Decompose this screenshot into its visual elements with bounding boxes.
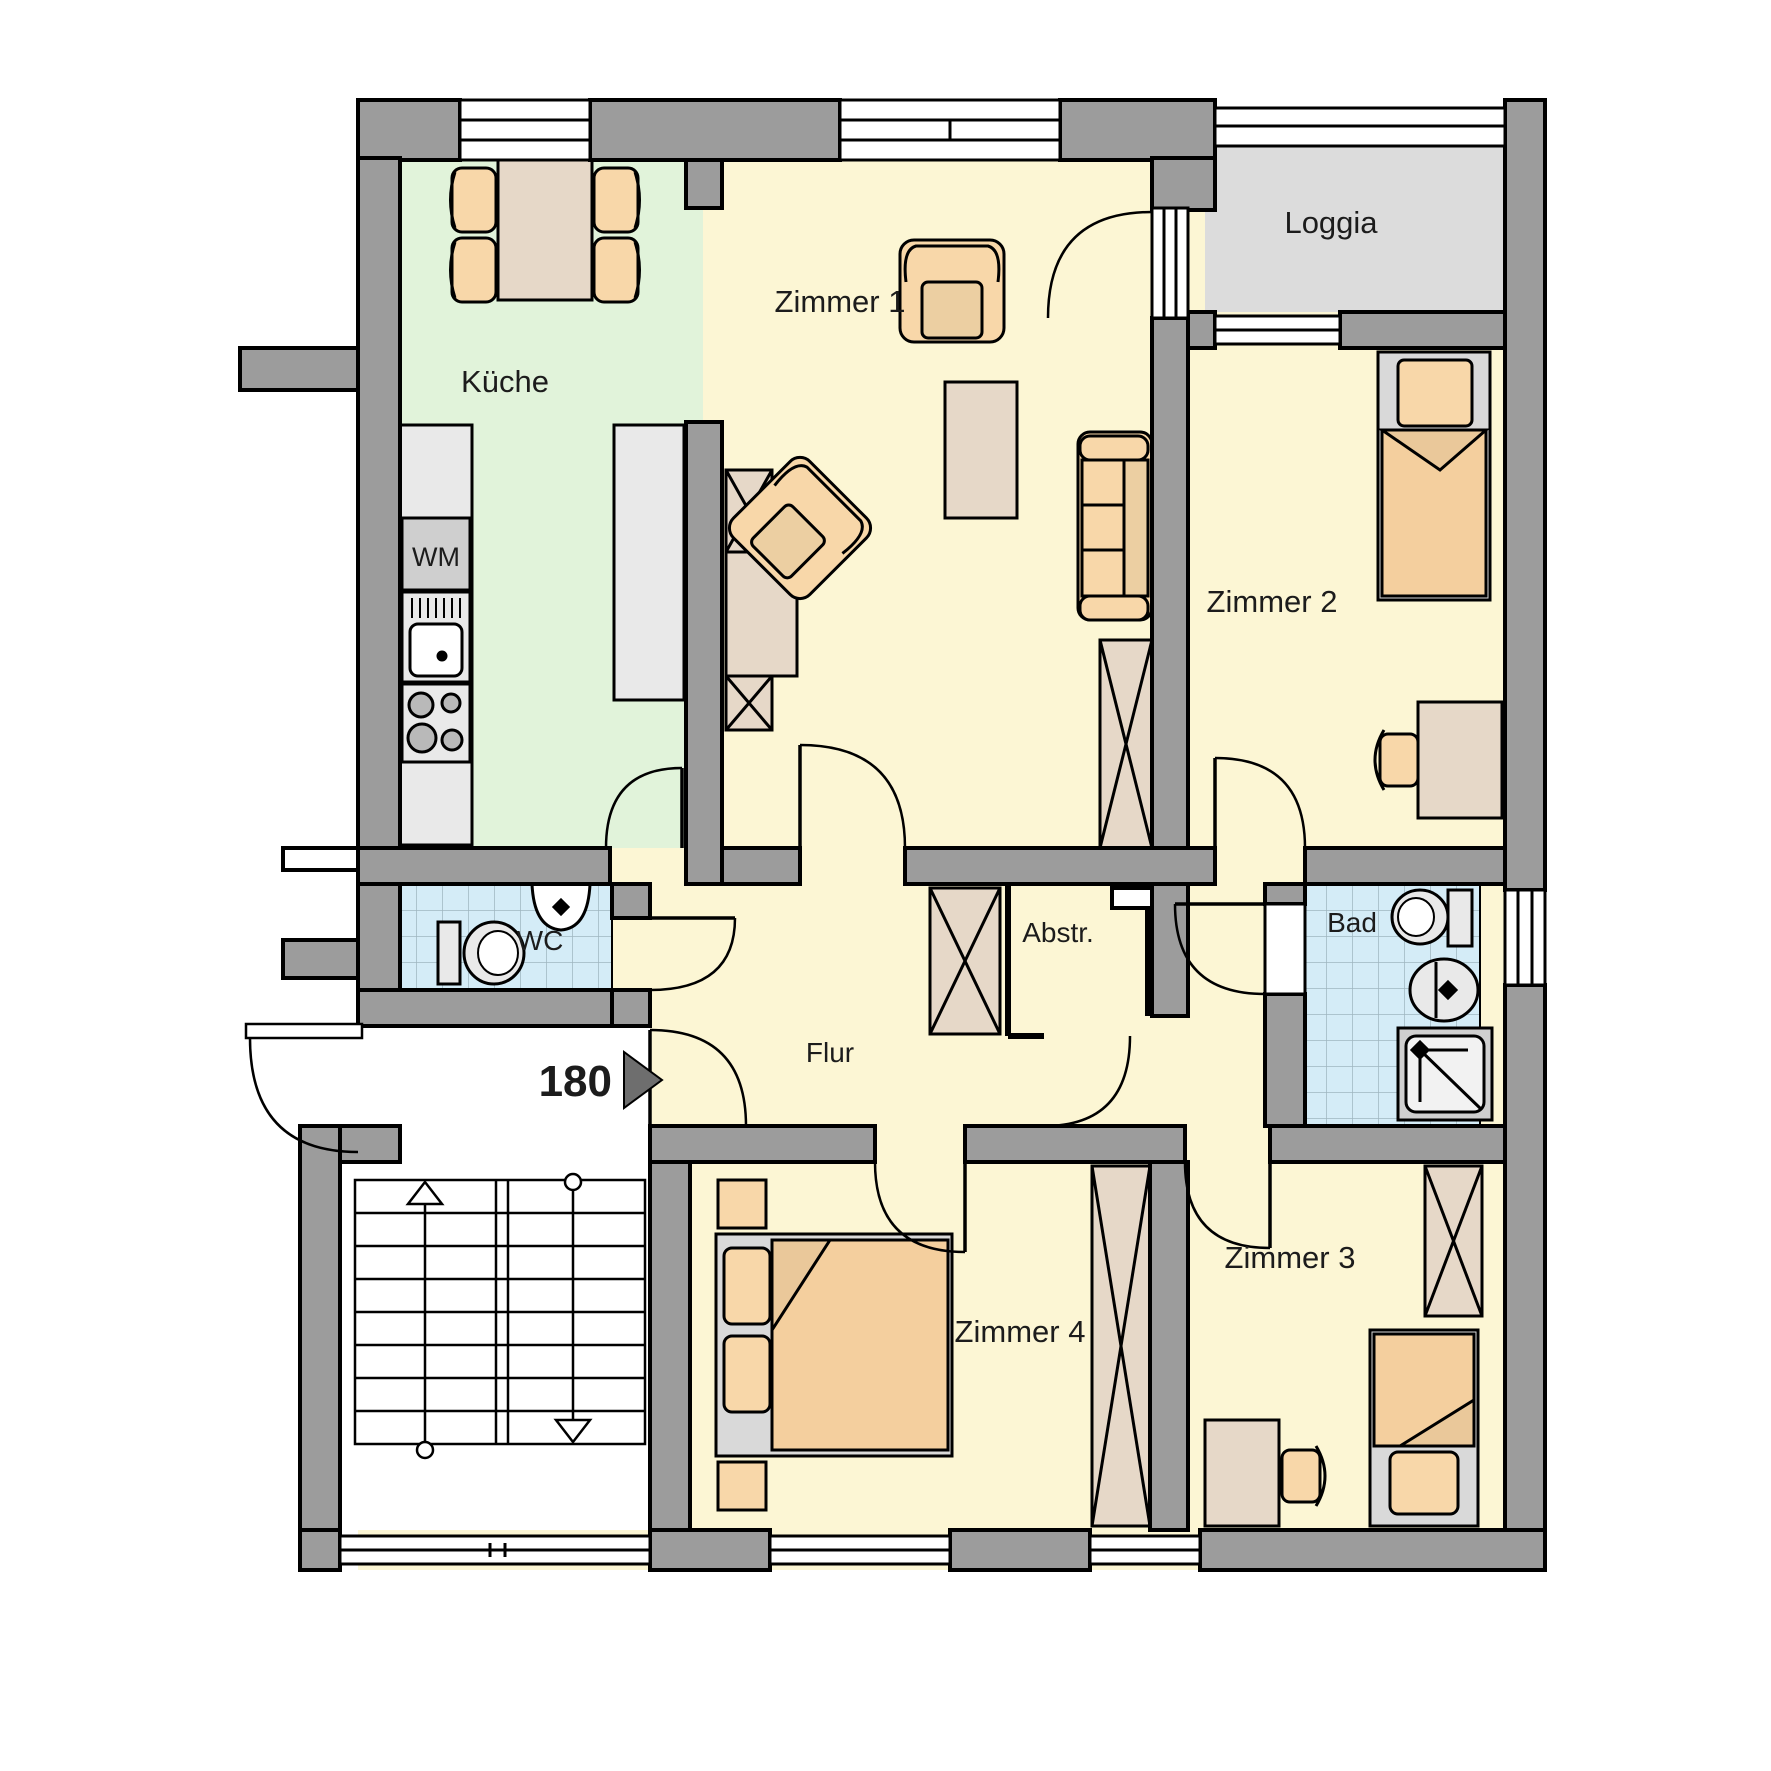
wall bbox=[1505, 985, 1545, 1570]
stove-burner bbox=[409, 693, 433, 717]
room-label-kueche: Küche bbox=[461, 364, 549, 399]
wall bbox=[950, 1530, 1090, 1570]
zimmer3-bed bbox=[1370, 1330, 1478, 1526]
wall bbox=[358, 100, 460, 160]
zimmer2-chair bbox=[1375, 730, 1418, 790]
wall bbox=[1188, 312, 1215, 348]
sink-basin bbox=[410, 624, 462, 676]
dining-chair bbox=[594, 238, 638, 302]
room-label-zimmer2: Zimmer 2 bbox=[1207, 584, 1338, 619]
window-zimmer3 bbox=[1090, 1536, 1200, 1564]
room-label-loggia: Loggia bbox=[1284, 205, 1378, 240]
wall bbox=[965, 1126, 1185, 1162]
zimmer4-tall-wardrobe bbox=[1092, 1166, 1150, 1526]
pillow bbox=[724, 1336, 770, 1412]
flur-wardrobe-x bbox=[930, 888, 1000, 1034]
wall bbox=[1200, 1530, 1545, 1570]
toilet-tank bbox=[438, 922, 460, 984]
room-label-bad: Bad bbox=[1327, 907, 1377, 938]
wall bbox=[590, 100, 840, 160]
toilet-bowl-inner bbox=[478, 931, 518, 975]
wall bbox=[1152, 158, 1215, 210]
wall bbox=[1265, 994, 1305, 1126]
zimmer2-bed bbox=[1378, 352, 1490, 600]
wall bbox=[650, 1162, 690, 1530]
wall bbox=[686, 160, 722, 208]
window-bad bbox=[1505, 890, 1545, 985]
floor-plan-canvas: Zimmer 1 Küche Loggia Zimmer 2 WC Abstr.… bbox=[0, 0, 1771, 1771]
room-label-zimmer1: Zimmer 1 bbox=[775, 284, 906, 319]
stove-burner bbox=[408, 724, 436, 752]
window-loggia-zimmer2 bbox=[1215, 316, 1340, 344]
living-tall-wardrobe bbox=[1100, 640, 1152, 848]
wall bbox=[1150, 1162, 1188, 1530]
floor-plan-page: Zimmer 1 Küche Loggia Zimmer 2 WC Abstr.… bbox=[0, 0, 1771, 1771]
wall bbox=[1340, 312, 1505, 348]
room-label-abstr: Abstr. bbox=[1022, 917, 1094, 948]
window-stairwell bbox=[340, 1536, 650, 1564]
wall bbox=[300, 1530, 340, 1570]
dining-chair bbox=[452, 168, 496, 232]
wall-stub-neighbor bbox=[283, 848, 358, 870]
wall bbox=[686, 422, 722, 884]
staircase bbox=[355, 1174, 645, 1458]
wall bbox=[300, 1126, 340, 1530]
washing-machine-label: WM bbox=[412, 542, 460, 572]
window-zimmer4 bbox=[770, 1536, 950, 1564]
wall bbox=[722, 848, 800, 884]
wall bbox=[905, 848, 1215, 884]
living-armchair-top bbox=[900, 240, 1004, 342]
sink-drainer-lines bbox=[412, 598, 460, 618]
window-zimmer1 bbox=[840, 100, 1060, 160]
room-label-flur: Flur bbox=[806, 1037, 854, 1068]
zimmer2-desk bbox=[1418, 702, 1502, 818]
pillow bbox=[1390, 1452, 1458, 1514]
coffee-table bbox=[945, 382, 1017, 518]
wall bbox=[1152, 318, 1188, 848]
wall bbox=[358, 990, 612, 1026]
wall bbox=[1270, 1126, 1505, 1162]
wall-stub-neighbor bbox=[240, 348, 358, 390]
door-channel-bad bbox=[1265, 904, 1305, 994]
living-sofa bbox=[1078, 432, 1152, 620]
wall bbox=[1505, 100, 1545, 890]
room-label-zimmer3: Zimmer 3 bbox=[1225, 1240, 1356, 1275]
loggia-railing bbox=[1215, 108, 1505, 146]
bad-toilet-tank bbox=[1448, 890, 1472, 946]
stove-burner bbox=[442, 730, 462, 750]
wall bbox=[650, 1126, 875, 1162]
stove-burner bbox=[442, 694, 460, 712]
zimmer3-chair bbox=[1282, 1446, 1325, 1506]
wall bbox=[1265, 884, 1305, 904]
nightstand bbox=[718, 1180, 766, 1228]
entrance-width-label: 180 bbox=[539, 1057, 612, 1106]
dining-chair bbox=[452, 238, 496, 302]
room-label-wc: WC bbox=[517, 925, 564, 956]
wall-stub-neighbor bbox=[283, 940, 358, 978]
kitchen-island-counter bbox=[614, 425, 684, 700]
wall bbox=[612, 884, 650, 918]
wall bbox=[1060, 100, 1215, 160]
wall bbox=[358, 848, 610, 884]
room-label-zimmer4: Zimmer 4 bbox=[955, 1314, 1086, 1349]
wall bbox=[650, 1530, 770, 1570]
nightstand bbox=[718, 1462, 766, 1510]
dining-chair bbox=[594, 168, 638, 232]
shower bbox=[1398, 1028, 1492, 1120]
wall bbox=[1305, 848, 1505, 884]
window-kitchen bbox=[460, 100, 590, 160]
door-channel-loggia bbox=[1152, 208, 1188, 318]
wall bbox=[612, 990, 650, 1026]
wall bbox=[358, 158, 400, 1026]
kitchen-dining-table-group bbox=[451, 150, 640, 302]
zimmer3-desk bbox=[1205, 1420, 1279, 1526]
bad-toilet-bowl-inner bbox=[1398, 898, 1434, 936]
zimmer3-wardrobe-x bbox=[1425, 1166, 1482, 1316]
pillow bbox=[724, 1248, 770, 1324]
sink-drain bbox=[438, 652, 446, 660]
dining-table bbox=[498, 150, 592, 300]
